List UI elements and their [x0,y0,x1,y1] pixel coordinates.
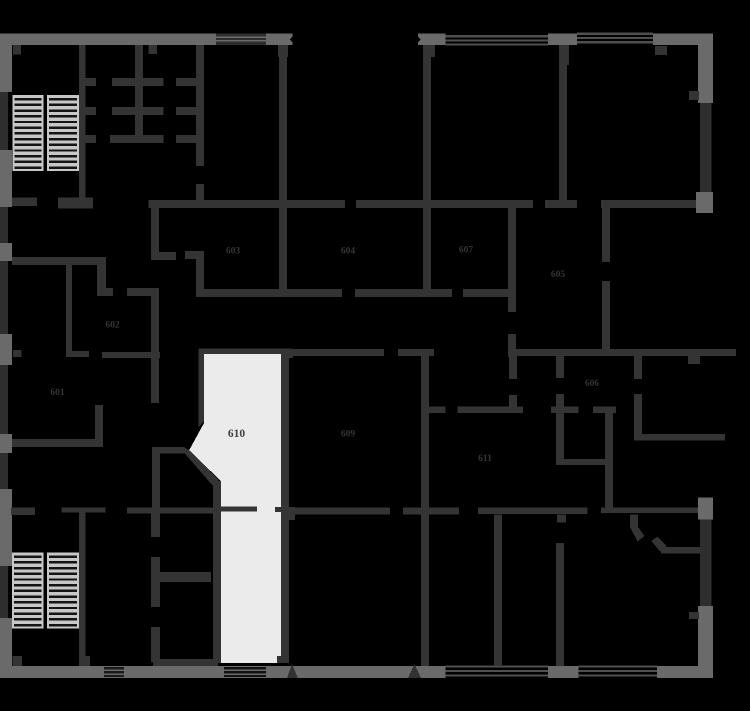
svg-text:606: 606 [585,379,600,389]
svg-text:603: 603 [226,247,241,257]
svg-text:607: 607 [459,246,474,256]
svg-text:609: 609 [341,430,356,440]
svg-text:604: 604 [341,247,356,257]
svg-text:611: 611 [478,454,492,464]
svg-text:610: 610 [228,428,246,440]
svg-text:602: 602 [105,321,120,331]
svg-text:605: 605 [551,270,566,280]
svg-text:601: 601 [50,388,65,398]
